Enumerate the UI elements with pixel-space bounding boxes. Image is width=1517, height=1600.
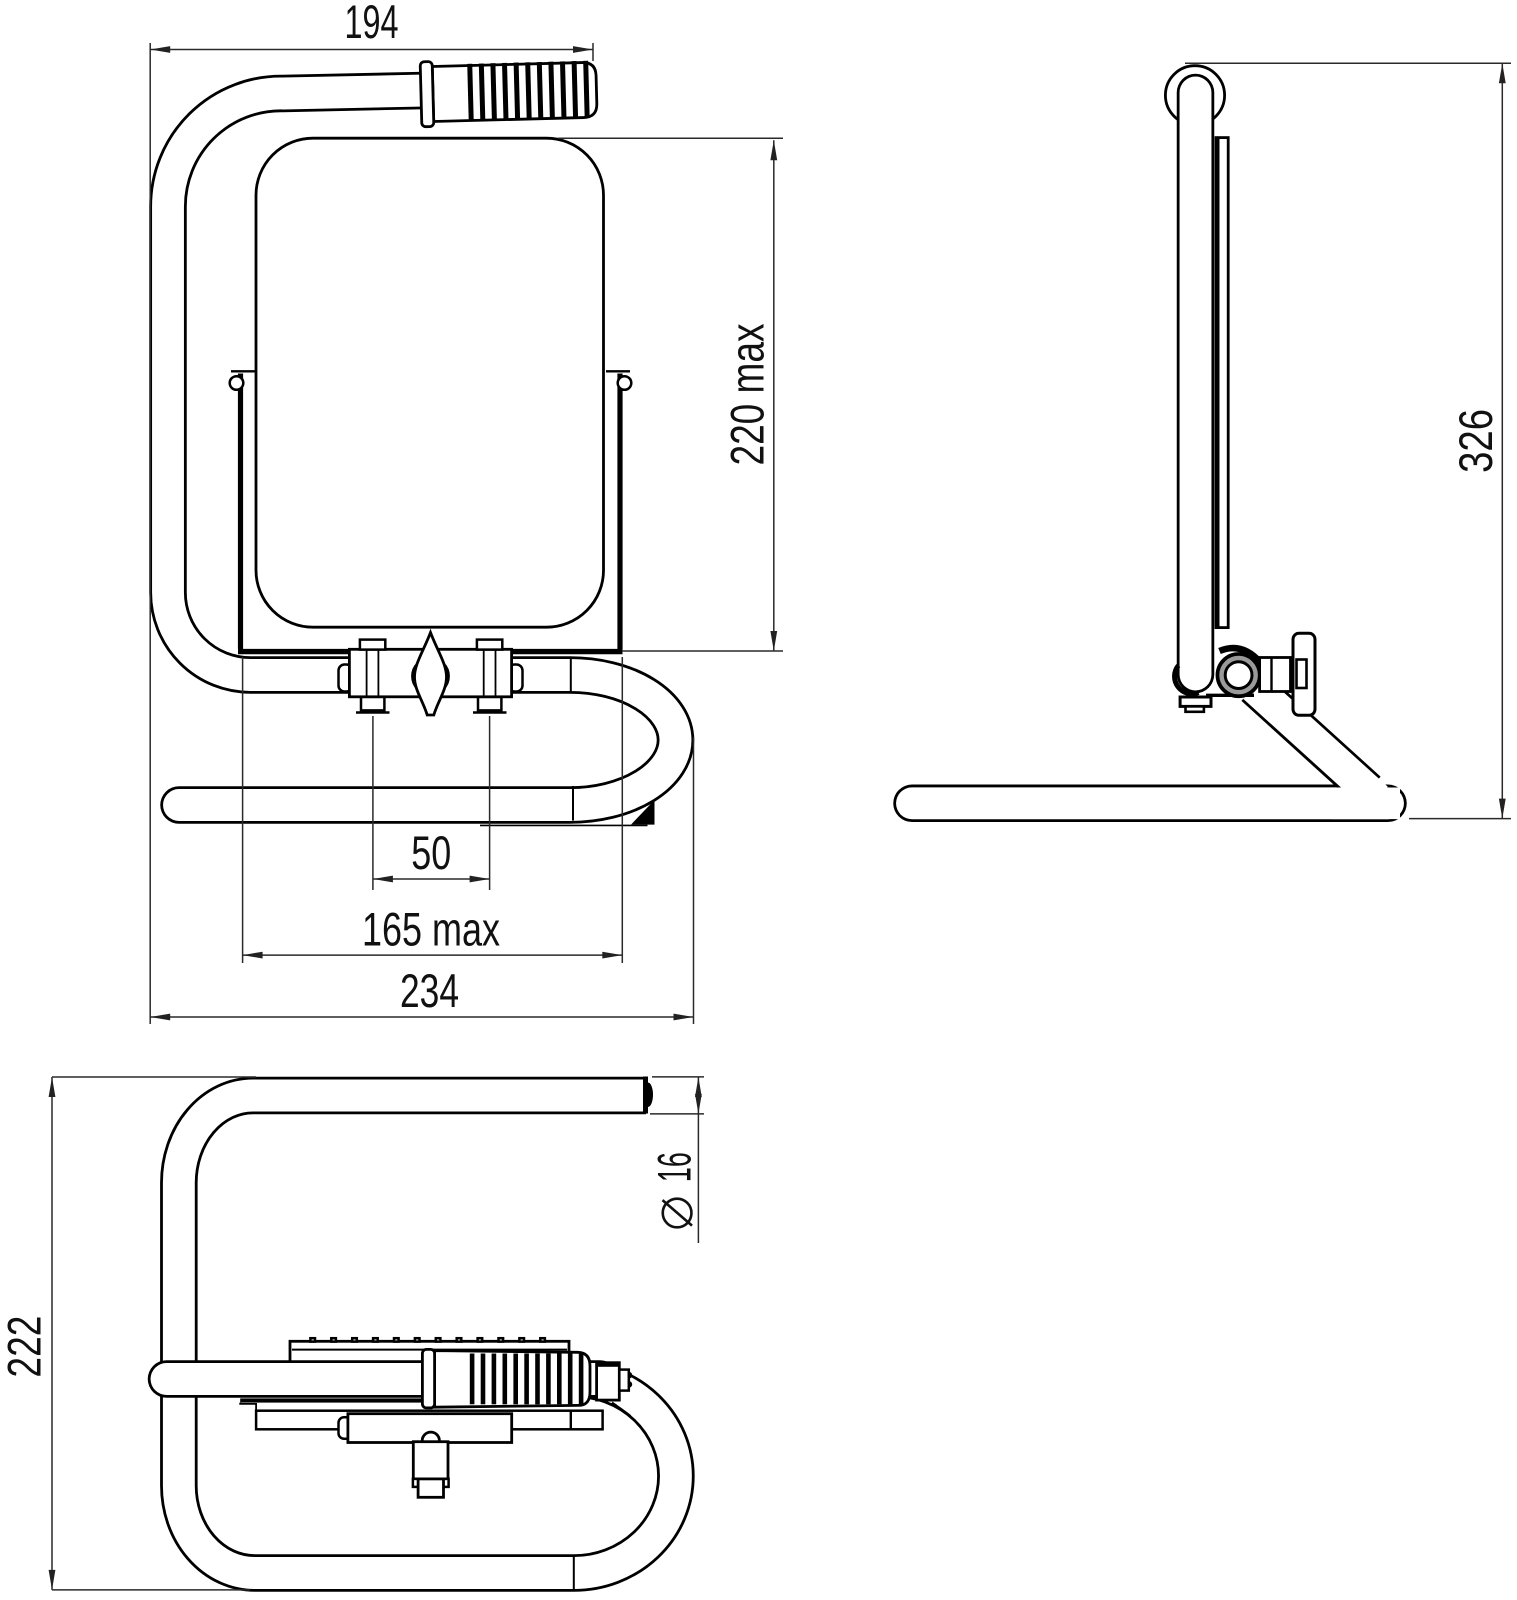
- svg-text:50: 50: [411, 826, 451, 879]
- svg-text:16: 16: [648, 1152, 701, 1182]
- svg-text:222: 222: [0, 1316, 50, 1378]
- svg-text:326: 326: [1449, 409, 1502, 473]
- svg-text:234: 234: [400, 964, 459, 1017]
- svg-text:220 max: 220 max: [721, 324, 774, 466]
- svg-text:165 max: 165 max: [362, 903, 500, 956]
- svg-text:194: 194: [345, 0, 399, 48]
